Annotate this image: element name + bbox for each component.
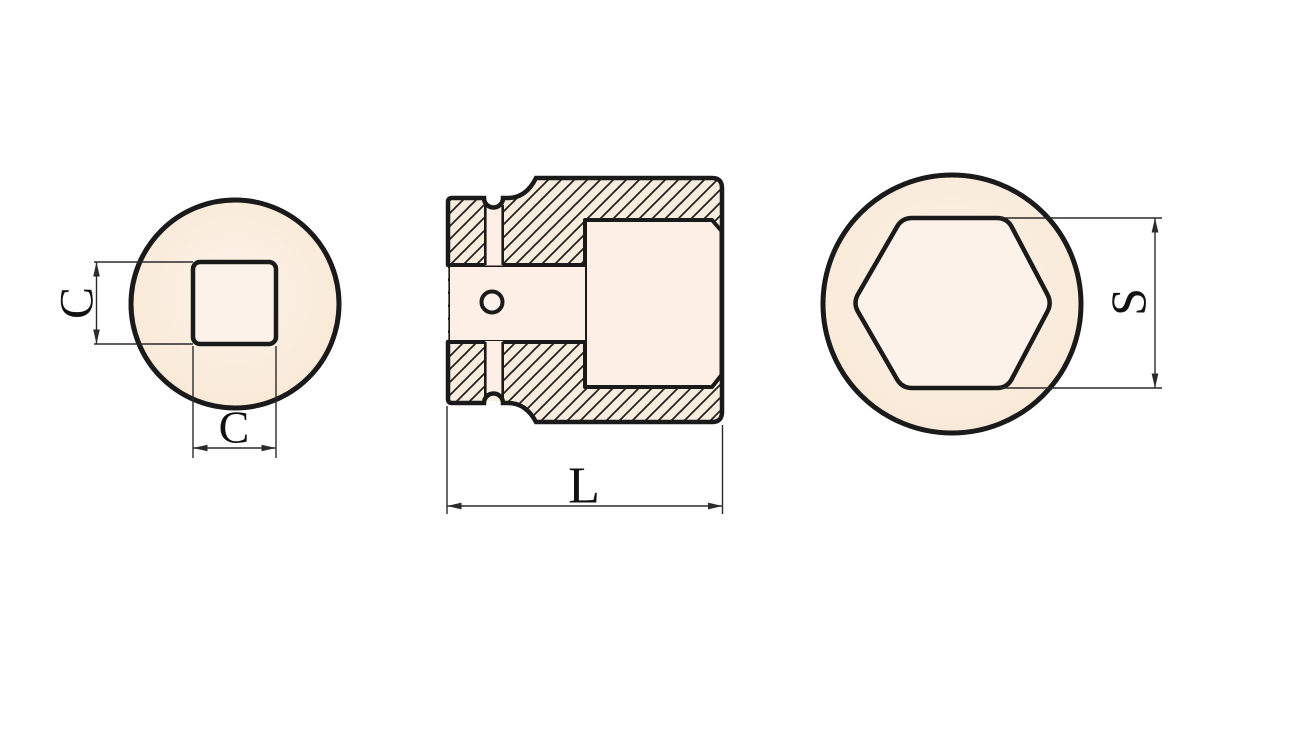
pin-hole — [482, 292, 503, 313]
groove-upper — [485, 204, 502, 266]
socket-technical-drawing-page: C C — [0, 0, 1304, 744]
label-c-vertical: C — [50, 287, 103, 319]
label-c-horizontal: C — [219, 402, 250, 453]
arrowhead-icon — [93, 262, 100, 277]
arrowhead-icon — [93, 330, 100, 345]
label-across-flats: S — [1100, 288, 1156, 316]
square-drive-end-view: C C — [50, 200, 339, 458]
label-length: L — [568, 458, 600, 515]
square-drive-hole — [193, 262, 276, 344]
arrowhead-icon — [262, 445, 277, 452]
hex-bore-cavity — [585, 220, 722, 387]
hex-opening-end-view: S — [823, 175, 1162, 433]
square-drive-bore — [450, 265, 586, 342]
arrowhead-icon — [447, 503, 462, 510]
cross-section-view: L — [447, 178, 723, 515]
arrowhead-icon — [1152, 374, 1159, 389]
socket-technical-drawing: C C — [0, 0, 1304, 744]
arrowhead-icon — [708, 503, 723, 510]
arrowhead-icon — [193, 445, 208, 452]
arrowhead-icon — [1152, 218, 1159, 233]
